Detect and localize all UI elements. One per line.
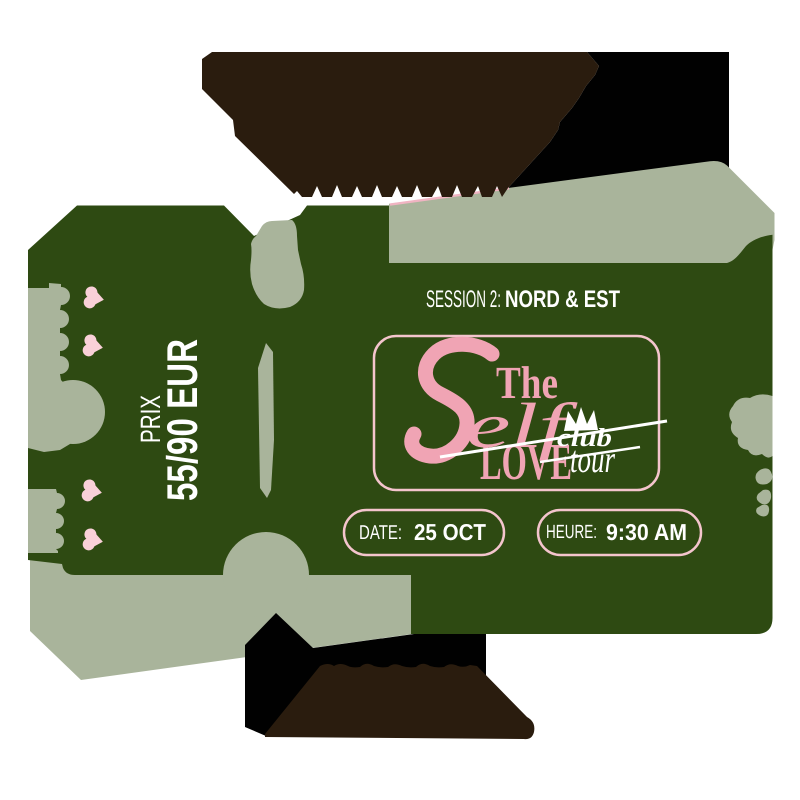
svg-text:DATE:: DATE: <box>359 522 402 544</box>
svg-text:SESSION 2:: SESSION 2: <box>426 286 501 313</box>
svg-text:25 OCT: 25 OCT <box>414 519 486 545</box>
svg-text:9:30 AM: 9:30 AM <box>606 519 687 545</box>
svg-text:HEURE:: HEURE: <box>546 522 597 543</box>
svg-text:55/90 EUR: 55/90 EUR <box>159 339 207 501</box>
svg-text:NORD & EST: NORD & EST <box>505 286 620 313</box>
